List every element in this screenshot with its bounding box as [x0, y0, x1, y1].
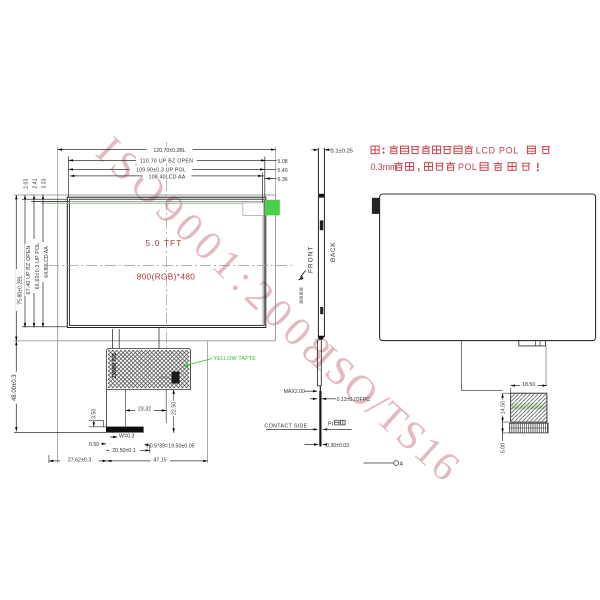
svg-text:0.30±0.03: 0.30±0.03 [326, 443, 349, 449]
svg-text:FRONT: FRONT [307, 245, 314, 273]
svg-text:W=0.3: W=0.3 [119, 434, 135, 440]
svg-text:A: A [400, 462, 404, 468]
svg-text:27.62±0.3: 27.62±0.3 [68, 458, 92, 464]
svg-text:120.70±0.2BL: 120.70±0.2BL [153, 148, 185, 154]
svg-text:2.03: 2.03 [24, 179, 30, 189]
svg-text:0.3mm: 0.3mm [371, 162, 398, 172]
svg-text:800(RGB)*480: 800(RGB)*480 [137, 273, 196, 282]
svg-text:5.08: 5.08 [278, 159, 288, 165]
svg-text:67.40 UP BZ OPEN: 67.40 UP BZ OPEN [26, 245, 32, 294]
svg-text:48.00±0.3: 48.00±0.3 [12, 374, 18, 401]
svg-text:14.50: 14.50 [501, 401, 507, 414]
svg-text:CONTACT SIDE: CONTACT SIDE [264, 423, 307, 429]
svg-text:3.33: 3.33 [41, 178, 47, 188]
svg-text:POL: POL [458, 162, 477, 172]
svg-text:108.40LCD AA: 108.40LCD AA [149, 174, 186, 180]
svg-text:PIN1: PIN1 [161, 376, 169, 380]
svg-text:YELLOW TAPTE: YELLOW TAPTE [214, 356, 257, 362]
svg-text:22.50: 22.50 [172, 402, 178, 415]
svg-text:BACK: BACK [330, 242, 337, 262]
svg-text:3.50: 3.50 [92, 409, 98, 419]
svg-text:23.32: 23.32 [138, 407, 151, 413]
svg-text:5.40: 5.40 [278, 168, 288, 174]
svg-text:ISO/TS16: ISO/TS16 [305, 336, 470, 491]
svg-text:PI: PI [328, 421, 333, 427]
svg-text:20.50±0.1: 20.50±0.1 [112, 448, 136, 454]
svg-text:64.80LCD AA: 64.80LCD AA [44, 246, 50, 278]
svg-text:66.60±0.3 UP POL: 66.60±0.3 UP POL [35, 243, 41, 290]
svg-text:18.50: 18.50 [522, 382, 535, 388]
svg-text:2.41: 2.41 [32, 178, 38, 188]
svg-text:LCD POL: LCD POL [476, 146, 519, 156]
svg-text:0.50: 0.50 [89, 442, 99, 448]
svg-text:0.13±0.03FPC: 0.13±0.03FPC [337, 397, 371, 403]
svg-text:5.0 TFT: 5.0 TFT [146, 239, 183, 248]
svg-text:110.70 UP BZ OPEN: 110.70 UP BZ OPEN [140, 159, 193, 165]
svg-text:47.15: 47.15 [153, 458, 166, 464]
svg-text:Z300500 7035: Z300500 7035 [112, 353, 118, 378]
svg-text:5.00: 5.00 [501, 443, 507, 453]
svg-text:MAX2.00: MAX2.00 [284, 389, 305, 395]
svg-text:ISO9001:2008: ISO9001:2008 [88, 127, 344, 377]
svg-text:6.36: 6.36 [278, 177, 288, 183]
svg-text:75.80±0.2BL: 75.80±0.2BL [17, 275, 23, 304]
svg-text:3.1±0.25: 3.1±0.25 [331, 148, 354, 154]
svg-text:P0.5*39=19.50±0.05: P0.5*39=19.50±0.05 [146, 443, 194, 449]
